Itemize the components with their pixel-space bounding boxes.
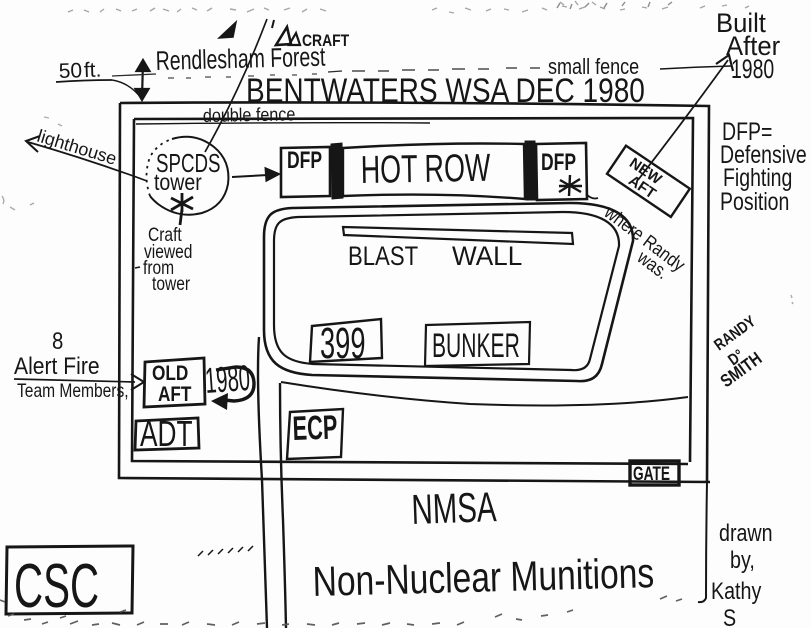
svg-text:ECP: ECP (292, 409, 338, 449)
svg-text:AFT: AFT (158, 384, 192, 407)
svg-text:OLD: OLD (152, 363, 188, 386)
svg-text:HOT ROW: HOT ROW (360, 147, 491, 192)
svg-text:Position: Position (720, 188, 789, 216)
svg-text:Alert Fire: Alert Fire (14, 353, 100, 380)
svg-text:Kathy: Kathy (711, 577, 761, 604)
svg-text:BUNKER: BUNKER (432, 326, 520, 364)
svg-text:ADT: ADT (140, 413, 193, 454)
svg-text:drawn: drawn (719, 519, 773, 546)
svg-text:tower: tower (152, 273, 190, 295)
svg-text:double fence: double fence (203, 103, 296, 126)
svg-text:GATE: GATE (633, 463, 670, 485)
svg-text:DFP: DFP (541, 149, 576, 175)
svg-text:Team Members,: Team Members, (17, 380, 129, 402)
svg-text:1980: 1980 (731, 54, 774, 84)
svg-text:DFP: DFP (287, 147, 322, 173)
svg-text:NMSA: NMSA (411, 483, 498, 533)
svg-text:399: 399 (320, 318, 366, 367)
svg-text:by,: by, (730, 546, 755, 573)
svg-text:BLAST: BLAST (348, 242, 418, 272)
svg-text:8: 8 (52, 327, 63, 354)
svg-text:Non-Nuclear Munitions: Non-Nuclear Munitions (312, 551, 655, 606)
svg-text:S: S (723, 604, 736, 628)
svg-text:WALL: WALL (452, 241, 522, 271)
svg-text:tower: tower (154, 170, 202, 196)
svg-text:CRAFT: CRAFT (302, 32, 350, 51)
svg-text:CSC: CSC (14, 552, 99, 621)
